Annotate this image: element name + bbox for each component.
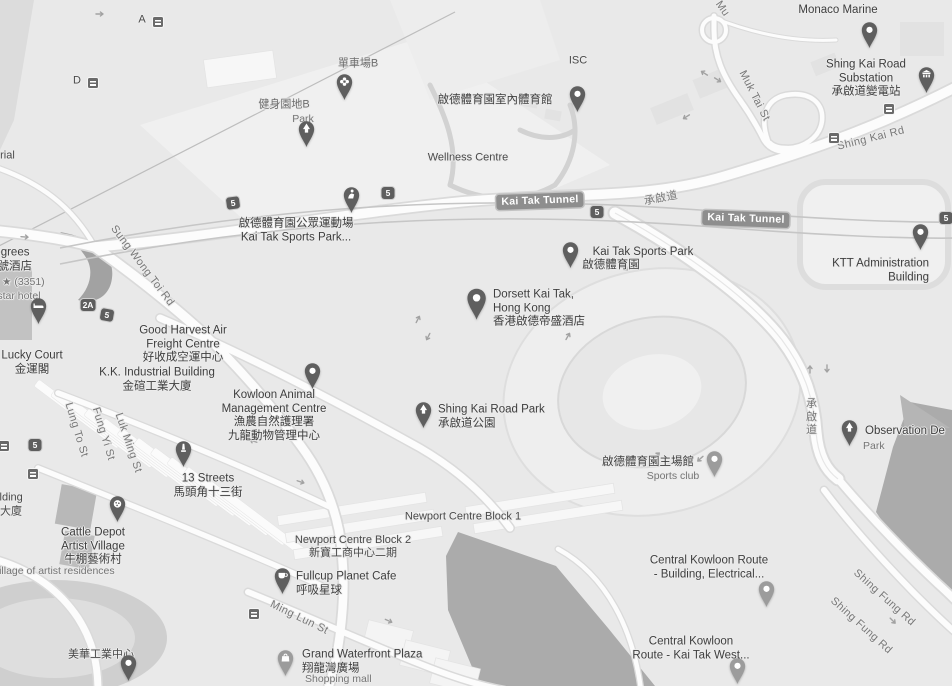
route-5-c-shield: 5 (591, 206, 604, 218)
transit-stop-e-icon (0, 440, 10, 452)
transit-stop-g-icon (87, 77, 99, 89)
newport-block-1-label: Newport Centre Block 1 (405, 511, 521, 524)
indoor-sports-pin[interactable] (567, 84, 588, 113)
cattle-depot-label[interactable]: Cattle Depot Artist Village 牛棚藝術村 (61, 527, 125, 568)
fullcup-planet-cafe-label[interactable]: Fullcup Planet Cafe 呼吸星球 (296, 570, 396, 597)
thirteen-streets-pin[interactable] (173, 439, 194, 468)
cycling-area-b-label[interactable]: 單車場B (338, 58, 378, 71)
ckr-building-label[interactable]: Central Kowloon Route - Building, Electr… (650, 554, 768, 581)
thirteen-streets-label[interactable]: 13 Streets 馬頭角十三街 (174, 472, 243, 499)
good-harvest-label[interactable]: Good Harvest Air Freight Centre 好收成空運中心 (139, 325, 227, 366)
route-2a-shield: 2A (81, 299, 96, 311)
ckr-west-pin[interactable] (727, 656, 748, 685)
fitness-park-pin[interactable] (296, 119, 317, 148)
lucky-court-label[interactable]: Lucky Court 金運閣 (1, 349, 62, 376)
route-5-a-shield: 5 (226, 196, 241, 210)
transit-stop-b-icon (883, 103, 895, 115)
shing-kai-road-park-label[interactable]: Shing Kai Road Park 承啟道公園 (438, 403, 545, 430)
ktt-admin-pin[interactable] (910, 222, 931, 251)
memorial-label: orial (0, 150, 15, 163)
fitness-area-b-label[interactable]: 健身園地B (258, 99, 309, 112)
animal-centre-pin[interactable] (302, 361, 323, 390)
dorsett-pin[interactable] (464, 286, 489, 321)
observation-deck-pin[interactable] (839, 418, 860, 447)
main-stadium-pin[interactable] (704, 449, 725, 478)
grand-waterfront-pin[interactable] (275, 648, 296, 677)
kowloon-animal-centre-label[interactable]: Kowloon Animal Management Centre 漁農自然護理署… (222, 389, 327, 443)
wellness-centre-label: Wellness Centre (428, 152, 509, 165)
sports-park-pin[interactable] (560, 240, 581, 269)
transit-stop-a-icon (828, 132, 840, 144)
observation-deck-cat-label: Park (863, 440, 885, 452)
dorsett-kai-tak-label[interactable]: Dorsett Kai Tak, Hong Kong 香港啟德帝盛酒店 (493, 289, 585, 330)
degrees-rating-label: ★ (3351) (2, 276, 45, 288)
fullcup-cafe-pin[interactable] (272, 566, 293, 595)
monaco-marine-pin[interactable] (859, 20, 880, 49)
kai-tak-tunnel-1-road-badge: Kai Tak Tunnel (496, 192, 584, 210)
mei-wah-pin[interactable] (118, 653, 139, 682)
main-stadium-label[interactable]: 啟德體育園主場館 (602, 456, 694, 470)
shing-kai-road-park-pin[interactable] (413, 400, 434, 429)
monaco-marine-label[interactable]: Monaco Marine (798, 4, 877, 18)
artist-residences-label: t village of artist residences (0, 565, 115, 577)
stop-d-label: D (73, 75, 81, 88)
substation-pin[interactable] (916, 65, 937, 94)
shing-kai-road-substation-label[interactable]: Shing Kai Road Substation 承啟道變電站 (826, 59, 906, 100)
left-building-zh-label: 大廈 (0, 506, 22, 519)
grand-waterfront-cat-label: Shopping mall (305, 673, 372, 685)
degrees-hotel-pin[interactable] (28, 296, 49, 325)
cattle-depot-pin[interactable] (107, 494, 128, 523)
left-building-label: al Building (0, 492, 23, 505)
shing-kai-do-vertical-label: 承啟道 (805, 398, 816, 437)
cycling-area-pin[interactable] (334, 72, 355, 101)
grand-waterfront-plaza-label[interactable]: Grand Waterfront Plaza 翔龍灣廣場 (302, 648, 422, 675)
map-canvas[interactable]: Monaco MarineShing Kai Road Substation 承… (0, 0, 952, 686)
main-stadium-cat-label: Sports club (647, 470, 700, 482)
indoor-sports-centre-label[interactable]: 啟德體育園室內體育館 (438, 94, 553, 108)
route-5-b-shield: 5 (382, 187, 395, 199)
observation-deck-label[interactable]: Observation De (865, 425, 945, 439)
ktt-administration-label[interactable]: KTT Administration Building (832, 257, 929, 284)
transit-stop-d-icon (27, 468, 39, 480)
degrees-hotel-label[interactable]: Degrees 壹號酒店 (0, 246, 32, 273)
route-5-f-shield: 5 (29, 439, 42, 451)
transit-stop-c-icon (248, 608, 260, 620)
ckr-building-pin[interactable] (756, 579, 777, 608)
kk-industrial-label[interactable]: K.K. Industrial Building 金碹工業大廈 (99, 366, 215, 393)
transit-stop-f-icon (152, 16, 164, 28)
newport-block-2-label: Newport Centre Block 2 新寶工商中心二期 (295, 534, 411, 560)
kai-tak-tunnel-2-road-badge: Kai Tak Tunnel (702, 210, 790, 228)
route-5-e-shield: 5 (100, 308, 115, 322)
stop-a-label: A (138, 14, 145, 27)
kai-tak-sports-park-label[interactable]: Kai Tak Sports Park (593, 246, 694, 260)
route-5-d-shield: 5 (940, 212, 952, 224)
public-sports-ground-label[interactable]: 啟德體育園公眾運動場 Kai Tak Sports Park... (239, 217, 354, 244)
kai-tak-sports-park-zh-label[interactable]: 啟德體育園 (582, 259, 640, 273)
sports-ground-pin[interactable] (341, 185, 362, 214)
isc-label: ISC (569, 55, 587, 68)
